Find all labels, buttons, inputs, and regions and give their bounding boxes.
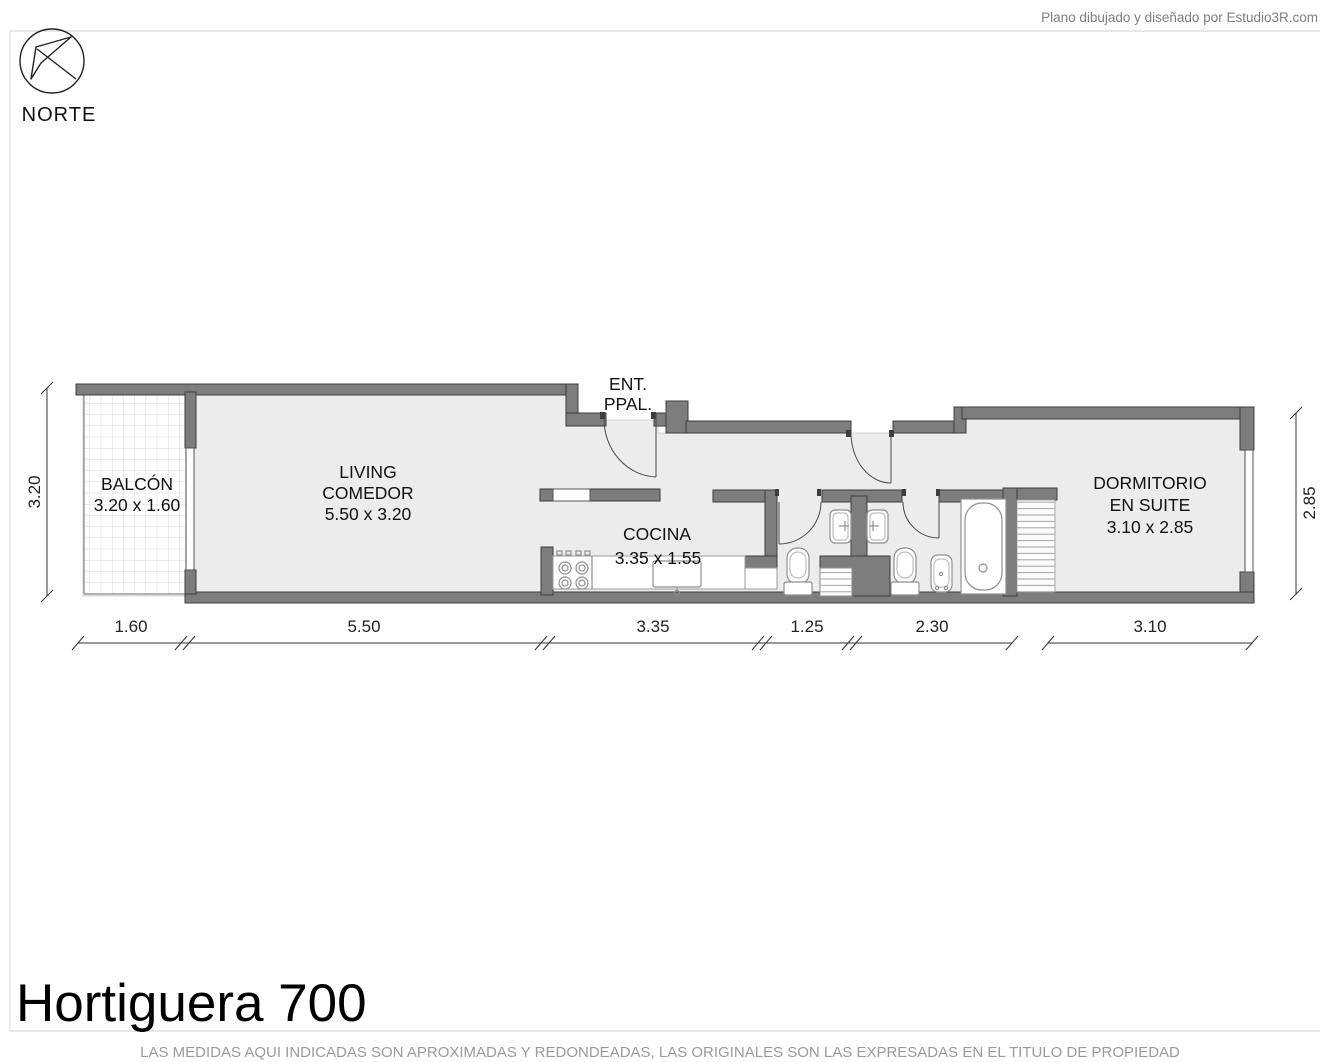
- room-label-dormitorio-1: DORMITORIO: [1093, 473, 1206, 493]
- toilet-right-icon: [891, 548, 919, 595]
- sink-left-icon: [830, 510, 851, 543]
- dim-bottom-2: 3.35: [636, 617, 669, 636]
- dim-left: 3.20: [25, 475, 44, 508]
- dim-bottom-4: 2.30: [915, 617, 948, 636]
- shower-hatch: [820, 568, 852, 596]
- page-title: Hortiguera 700: [16, 974, 367, 1033]
- dim-bottom-0: 1.60: [114, 617, 147, 636]
- bedroom-window: [1245, 450, 1253, 572]
- entrance-label-2: PPAL.: [604, 394, 652, 414]
- disclaimer-text: LAS MEDIDAS AQUI INDICADAS SON APROXIMAD…: [140, 1044, 1180, 1061]
- dim-bottom-3: 1.25: [790, 617, 823, 636]
- kitchen-counter-return: [745, 568, 777, 589]
- kitchen-pass-window: [553, 489, 590, 501]
- room-size-dormitorio: 3.10 x 2.85: [1107, 517, 1194, 537]
- compass-label: NORTE: [22, 104, 97, 126]
- floorplan-canvas: Plano dibujado y diseñado por Estudio3R.…: [0, 0, 1330, 1062]
- dim-bottom-1: 5.50: [347, 617, 380, 636]
- room-label-dormitorio-2: EN SUITE: [1110, 495, 1191, 515]
- dim-bottom-5: 3.10: [1133, 617, 1166, 636]
- closet-hatch: [1017, 500, 1055, 592]
- room-label-living-2: COMEDOR: [322, 483, 413, 503]
- toilet-left-icon: [784, 548, 812, 595]
- room-label-balcon: BALCÓN: [101, 473, 173, 494]
- room-size-living: 5.50 x 3.20: [325, 504, 412, 524]
- room-label-cocina: COCINA: [623, 524, 691, 544]
- dim-right: 2.85: [1300, 486, 1319, 519]
- room-label-living-1: LIVING: [339, 462, 396, 482]
- credit-text: Plano dibujado y diseñado por Estudio3R.…: [1041, 10, 1318, 25]
- floorplan-page: Plano dibujado y diseñado por Estudio3R.…: [0, 0, 1330, 1062]
- sink-right-icon: [867, 510, 888, 543]
- north-compass-icon: [20, 29, 84, 93]
- balcony-window: [186, 448, 194, 570]
- entrance-label-1: ENT.: [609, 374, 647, 394]
- bidet-icon: [931, 555, 952, 592]
- bathtub-icon: [961, 499, 1006, 594]
- room-size-balcon: 3.20 x 1.60: [94, 495, 181, 515]
- room-size-cocina: 3.35 x 1.55: [615, 548, 702, 568]
